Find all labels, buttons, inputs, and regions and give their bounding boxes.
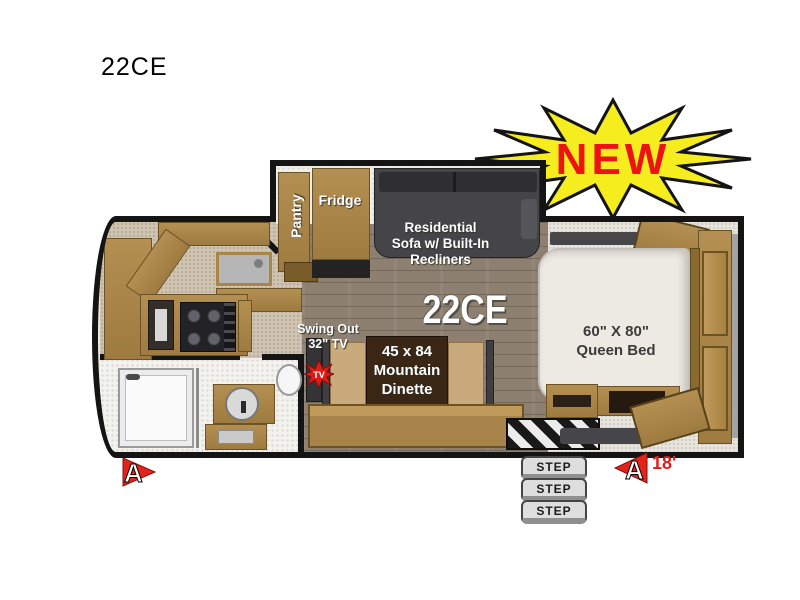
swing-tv-label: Swing Out 32" TV (286, 322, 370, 352)
counter-filler (238, 300, 252, 352)
model-number-label: 22CE (408, 288, 522, 332)
length-label: 18' (652, 453, 676, 474)
svg-text:A: A (625, 455, 644, 485)
dinette-bench (308, 404, 524, 448)
svg-text:A: A (124, 458, 143, 488)
bed-headboard (690, 248, 700, 402)
front-arrow-icon: A (120, 455, 158, 489)
entry-step-1: STEP (521, 456, 587, 480)
page-title: 22CE (101, 53, 168, 82)
bath-vanity (205, 424, 267, 450)
vanity-sink (218, 430, 254, 444)
entry-inner-step (560, 428, 642, 444)
fridge-label: Fridge (308, 192, 372, 209)
shower-glass (196, 368, 199, 448)
nightstand (546, 384, 598, 418)
toilet-flush (241, 401, 246, 413)
oven (148, 300, 174, 350)
toilet (225, 387, 259, 421)
dinette-cushion-left (330, 342, 366, 406)
kitchen-sink (216, 252, 272, 286)
svg-text:TV: TV (313, 370, 325, 380)
wardrobe-track (732, 234, 738, 438)
shower (118, 368, 194, 448)
entry-step-2: STEP (521, 478, 587, 502)
cooktop (180, 302, 236, 352)
slideout-room: Pantry Fridge Residential Sofa w/ Built-… (270, 160, 546, 222)
dinette-cushion-right (448, 342, 484, 406)
cooktop-knobs (224, 303, 235, 351)
sofa-backrest (379, 172, 537, 192)
badge-label: NEW (556, 135, 671, 184)
entry-step-3: STEP (521, 500, 587, 524)
sofa-armrest (521, 199, 537, 239)
bath-sink (276, 364, 302, 396)
shower-head-icon (126, 374, 140, 380)
bathroom-wall-door-side (262, 354, 302, 360)
faucet-icon (254, 259, 263, 268)
tv-icon: TV (304, 360, 334, 388)
fridge-cabinet (312, 168, 370, 260)
fridge-counter (312, 260, 370, 278)
nightstand-drawer (553, 395, 591, 407)
bedroom-shelf (550, 232, 638, 245)
wardrobe-door (702, 251, 728, 336)
sofa-label: Residential Sofa w/ Built-In Recliners (368, 220, 513, 268)
dinette-side-panel-right (486, 340, 494, 408)
oven-window (155, 309, 167, 341)
pantry-label: Pantry (288, 181, 304, 251)
rear-arrow-icon: A (612, 450, 650, 486)
bed-label: 60" X 80" Queen Bed (546, 322, 686, 360)
dinette-label: 45 x 84 Mountain Dinette (366, 342, 448, 399)
floorplan-page: 22CE NEW (0, 0, 800, 600)
